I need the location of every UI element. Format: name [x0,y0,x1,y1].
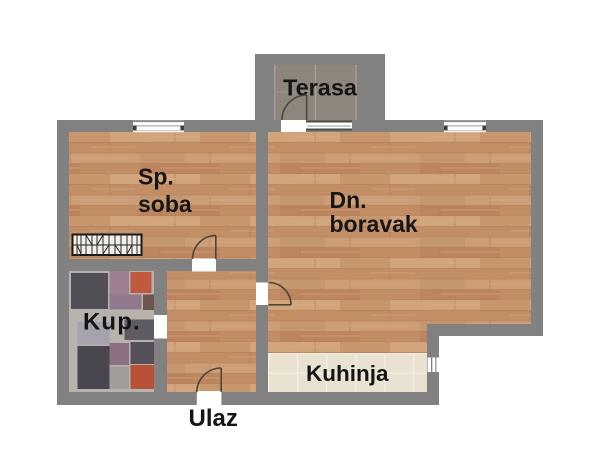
svg-text:boravak: boravak [330,211,418,237]
svg-text:Dn.: Dn. [330,187,367,213]
svg-text:Ulaz: Ulaz [189,405,238,432]
svg-text:Sp.: Sp. [138,164,174,190]
svg-text:Terasa: Terasa [283,75,358,101]
svg-text:soba: soba [138,191,192,217]
svg-text:Kuhinja: Kuhinja [306,361,389,386]
svg-text:Kup.: Kup. [83,309,141,336]
